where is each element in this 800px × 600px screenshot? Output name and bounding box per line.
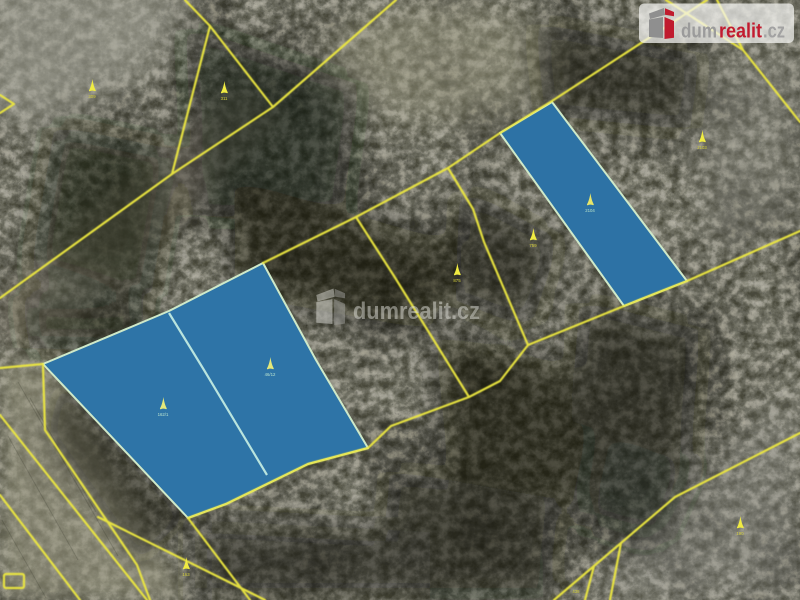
svg-text:190: 190 xyxy=(736,531,744,536)
svg-text:dumrealit.cz: dumrealit.cz xyxy=(353,298,480,325)
svg-text:2103: 2103 xyxy=(697,145,707,150)
svg-text:.cz: .cz xyxy=(763,20,785,42)
svg-text:309: 309 xyxy=(88,94,96,99)
svg-text:162/1: 162/1 xyxy=(158,412,169,417)
svg-text:46/12: 46/12 xyxy=(265,372,276,377)
svg-text:438: 438 xyxy=(572,589,580,594)
svg-text:2104: 2104 xyxy=(585,208,595,213)
svg-text:163: 163 xyxy=(182,572,190,577)
svg-text:realit: realit xyxy=(719,20,762,42)
svg-text:759: 759 xyxy=(529,243,537,248)
svg-text:dum: dum xyxy=(681,20,717,42)
svg-text:875: 875 xyxy=(453,278,461,283)
svg-text:311: 311 xyxy=(221,96,228,101)
